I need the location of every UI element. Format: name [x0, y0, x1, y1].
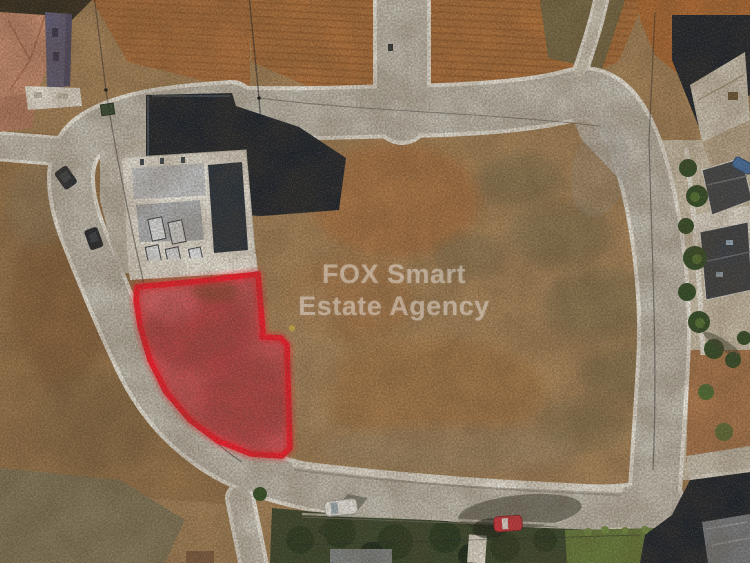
aerial-photo: [0, 0, 750, 563]
aerial-photo-listing: FOX Smart Estate Agency: [0, 0, 750, 563]
photo-grain: [0, 0, 750, 563]
